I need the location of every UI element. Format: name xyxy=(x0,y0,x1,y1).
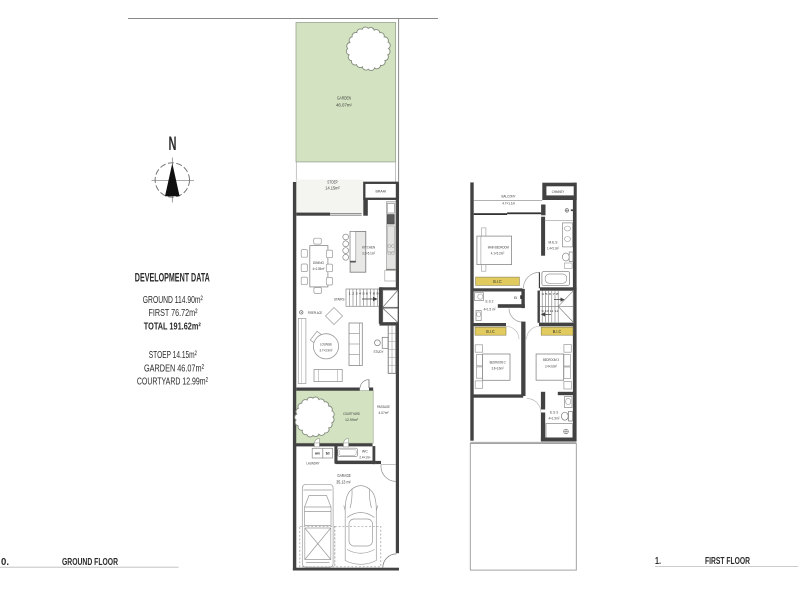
svg-text:E.S 2: E.S 2 xyxy=(486,299,494,303)
svg-text:CHIMNEY: CHIMNEY xyxy=(552,190,565,194)
svg-text:1.: 1. xyxy=(655,555,661,567)
svg-text:GROUND FLOOR: GROUND FLOOR xyxy=(62,556,118,568)
svg-text:B.I.C: B.I.C xyxy=(493,279,502,284)
svg-text:3.7×3.9m²: 3.7×3.9m² xyxy=(320,348,334,352)
svg-text:BRAAI: BRAAI xyxy=(376,189,387,194)
svg-text:35.13 m²: 35.13 m² xyxy=(336,480,351,485)
svg-text:4×2.55m²: 4×2.55m² xyxy=(313,267,326,271)
svg-text:wm: wm xyxy=(314,452,320,456)
svg-text:1.4×5.1m²: 1.4×5.1m² xyxy=(547,247,560,251)
svg-text:DINING: DINING xyxy=(313,261,324,265)
svg-text:MAIN BEDROOM: MAIN BEDROOM xyxy=(488,245,509,249)
svg-text:FIRST FLOOR: FIRST FLOOR xyxy=(705,555,750,567)
svg-text:STOEP: STOEP xyxy=(327,180,338,185)
svg-text:B.I.C: B.I.C xyxy=(486,329,495,334)
svg-text:4.7×1.1m: 4.7×1.1m xyxy=(502,202,515,206)
svg-text:LOUNGE: LOUNGE xyxy=(320,343,332,347)
svg-text:B.I.C: B.I.C xyxy=(553,329,562,334)
svg-text:GARDEN 46.07m²: GARDEN 46.07m² xyxy=(144,362,204,374)
svg-text:KITCHEN: KITCHEN xyxy=(362,244,375,249)
svg-text:GROUND 114.90m²: GROUND 114.90m² xyxy=(143,294,203,306)
svg-text:td: td xyxy=(326,452,330,456)
svg-text:FIREPLACE: FIREPLACE xyxy=(308,311,323,315)
svg-text:4.1×5.2m²: 4.1×5.2m² xyxy=(491,252,505,256)
svg-text:2.4×1m²: 2.4×1m² xyxy=(359,456,370,460)
svg-text:LAUNDRY: LAUNDRY xyxy=(307,462,320,466)
svg-text:WC: WC xyxy=(362,450,369,454)
svg-text:COURTYARD 12.99m²: COURTYARD 12.99m² xyxy=(137,376,208,388)
svg-text:14.15m²: 14.15m² xyxy=(325,186,340,191)
svg-text:9 10 11 12: 9 10 11 12 xyxy=(542,309,560,313)
svg-text:BEDROOM 3: BEDROOM 3 xyxy=(543,358,559,362)
svg-text:4×1.5 m²: 4×1.5 m² xyxy=(484,307,497,311)
svg-text:0.: 0. xyxy=(1,556,9,568)
svg-text:3.4×3.6m²: 3.4×3.6m² xyxy=(545,364,558,368)
svg-text:GARDEN: GARDEN xyxy=(337,96,351,101)
svg-text:DEVELOPMENT DATA: DEVELOPMENT DATA xyxy=(135,271,210,285)
svg-text:N: N xyxy=(169,134,177,155)
svg-text:BEDROOM 2: BEDROOM 2 xyxy=(490,360,506,364)
svg-text:STAIRS: STAIRS xyxy=(334,296,345,301)
svg-text:PASSAGE: PASSAGE xyxy=(377,405,390,409)
svg-text:46.07m²: 46.07m² xyxy=(336,103,353,108)
svg-text:1 2 3 4 5 6 7 8 9: 1 2 3 4 5 6 7 8 9 xyxy=(349,292,380,296)
svg-text:E.S 3: E.S 3 xyxy=(550,411,558,415)
svg-text:4×1.5m²: 4×1.5m² xyxy=(549,417,561,421)
svg-text:GARAGE: GARAGE xyxy=(337,473,351,478)
svg-text:M.E.S: M.E.S xyxy=(549,241,559,245)
svg-text:COURTYARD: COURTYARD xyxy=(343,411,360,416)
svg-text:FIRST 76.72m²: FIRST 76.72m² xyxy=(149,307,198,319)
svg-text:3.6×3.6m²: 3.6×3.6m² xyxy=(492,367,505,371)
svg-text:3.2×5.1m²: 3.2×5.1m² xyxy=(362,250,375,255)
svg-text:BALCONY: BALCONY xyxy=(502,195,516,199)
svg-text:4 5 6 7 8: 4 5 6 7 8 xyxy=(542,292,560,296)
svg-text:TOTAL 191.62m²: TOTAL 191.62m² xyxy=(144,321,201,333)
svg-text:4.07m²: 4.07m² xyxy=(379,411,390,415)
svg-text:STUDY: STUDY xyxy=(374,350,384,354)
svg-text:STOEP 14.15m²: STOEP 14.15m² xyxy=(149,349,197,361)
svg-text:12.99m²: 12.99m² xyxy=(345,417,359,422)
